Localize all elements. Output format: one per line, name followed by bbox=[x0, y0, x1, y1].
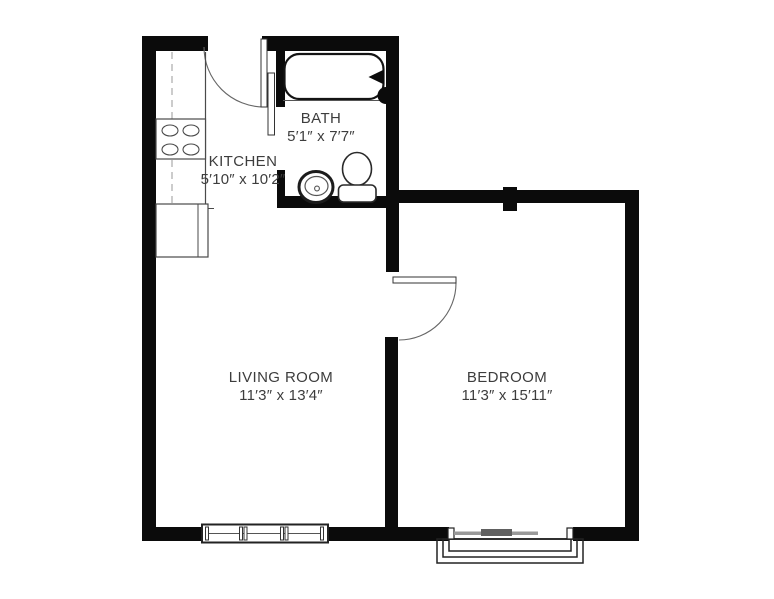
room-label-kitchen: KITCHEN 5′10″ x 10′2″ bbox=[201, 153, 286, 189]
base-cabinet-body bbox=[156, 204, 208, 257]
stove-burner bbox=[183, 125, 199, 136]
wall-junction-post bbox=[503, 187, 517, 211]
wall-divider-lower bbox=[385, 337, 398, 541]
room-label-bedroom: BEDROOM 11′3″ x 15′11″ bbox=[461, 369, 552, 405]
sliding-pane-slider bbox=[481, 529, 512, 536]
wall-bottom-living-left bbox=[142, 527, 205, 541]
stove-burner bbox=[183, 144, 199, 155]
stove-burner bbox=[162, 125, 178, 136]
room-name: BEDROOM bbox=[461, 369, 552, 387]
room-label-living-room: LIVING ROOM 11′3″ x 13′4″ bbox=[229, 369, 333, 405]
wall-bath-right bbox=[386, 36, 399, 272]
room-dimensions: 11′3″ x 15′11″ bbox=[461, 387, 552, 405]
floor-plan-drawing bbox=[0, 0, 774, 599]
window-mullion bbox=[285, 527, 288, 540]
bay-outline-middle bbox=[443, 539, 577, 557]
floor-plan: BATH 5′1″ x 7′7″ KITCHEN 5′10″ x 10′2″ L… bbox=[0, 0, 774, 599]
room-label-bath: BATH 5′1″ x 7′7″ bbox=[287, 110, 355, 146]
room-dimensions: 11′3″ x 13′4″ bbox=[229, 387, 333, 405]
room-name: BATH bbox=[287, 110, 355, 128]
window-mullion bbox=[281, 527, 284, 540]
toilet-tank bbox=[339, 185, 377, 202]
wall-bedroom-top bbox=[398, 190, 639, 203]
stove-icon bbox=[156, 119, 206, 159]
bedroom-bay-window bbox=[437, 528, 583, 563]
toilet-bowl bbox=[343, 153, 372, 186]
kitchen-door-leaf bbox=[261, 39, 267, 107]
base-cabinet-icon bbox=[156, 204, 214, 257]
room-dimensions: 5′10″ x 10′2″ bbox=[201, 171, 286, 189]
wall-right-bedroom bbox=[625, 190, 639, 541]
window-end-cap bbox=[321, 527, 324, 540]
bedroom-door-arc bbox=[399, 283, 456, 340]
window-mullion bbox=[244, 527, 247, 540]
bay-box bbox=[437, 539, 583, 563]
toilet-icon bbox=[339, 153, 377, 203]
bathtub-icon bbox=[285, 54, 384, 99]
room-name: LIVING ROOM bbox=[229, 369, 333, 387]
window-mullion bbox=[240, 527, 243, 540]
window-jamb-right bbox=[567, 528, 573, 539]
kitchen-door-arc bbox=[204, 47, 264, 107]
living-room-window bbox=[202, 525, 328, 543]
window-end-cap bbox=[206, 527, 209, 540]
room-name: KITCHEN bbox=[201, 153, 286, 171]
wall-left bbox=[142, 36, 156, 541]
walls bbox=[142, 36, 639, 541]
room-dimensions: 5′1″ x 7′7″ bbox=[287, 128, 355, 146]
bath-door-leaf bbox=[268, 73, 275, 135]
bay-outline-inner bbox=[449, 539, 571, 551]
stove-burner bbox=[162, 144, 178, 155]
bedroom-door-leaf bbox=[393, 277, 456, 283]
window-jamb-left bbox=[448, 528, 454, 539]
sink-icon bbox=[299, 172, 333, 203]
